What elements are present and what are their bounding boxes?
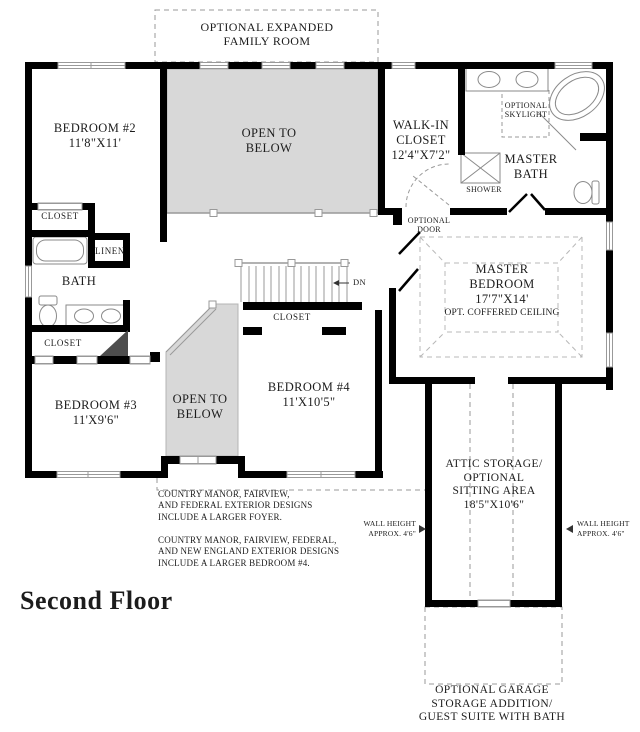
angled-wall-fill: [100, 330, 128, 356]
window: [58, 63, 125, 69]
label-wall-height-left: WALL HEIGHT APPROX. 4'6": [352, 519, 416, 539]
window: [607, 333, 613, 367]
toilet-icon: [39, 296, 57, 327]
label-bedroom4: BEDROOM #4 11'X10'5": [268, 380, 350, 410]
window: [607, 222, 613, 250]
wall-height-left-arrow-icon: [419, 525, 426, 533]
window: [57, 472, 120, 478]
window: [262, 63, 290, 69]
window: [200, 63, 228, 69]
label-closet-hall: CLOSET: [44, 338, 82, 349]
note-larger-bedroom4: COUNTRY MANOR, FAIRVIEW, FEDERAL, AND NE…: [158, 535, 339, 569]
label-master-bedroom: MASTER BEDROOM 17'7"X14': [469, 262, 534, 306]
doorway: [77, 356, 97, 364]
shower-icon: [461, 153, 500, 183]
window: [287, 472, 355, 478]
floor-plan-page: OPTIONAL EXPANDED FAMILY ROOM BEDROOM #2…: [0, 0, 640, 732]
doorway: [35, 356, 53, 364]
label-master-bath: MASTER BATH: [504, 152, 557, 182]
label-coffered-ceiling: OPT. COFFERED CEILING: [444, 308, 559, 319]
label-optional-skylight: OPTIONAL SKYLIGHT: [505, 101, 547, 120]
label-dn: DN: [353, 277, 366, 287]
double-sink-vanity-icon: [66, 305, 127, 327]
label-linen: LINEN: [95, 246, 125, 257]
page-title: Second Floor: [20, 586, 173, 616]
window: [392, 63, 415, 69]
label-optional-door: OPTIONAL DOOR: [408, 216, 450, 235]
master-toilet-icon: [574, 181, 599, 204]
doorway: [38, 203, 82, 210]
label-walk-in-closet: WALK-IN CLOSET 12'4"X7'2": [392, 118, 451, 162]
label-open-to-below-top: OPEN TO BELOW: [242, 126, 297, 156]
railing-opening: [180, 456, 216, 464]
label-bedroom2: BEDROOM #2 11'8"X11': [54, 121, 136, 151]
note-larger-foyer: COUNTRY MANOR, FAIRVIEW, AND FEDERAL EXT…: [158, 489, 313, 523]
label-bath: BATH: [62, 274, 96, 289]
label-optional-family-room: OPTIONAL EXPANDED FAMILY ROOM: [201, 20, 334, 48]
label-open-to-below-bottom: OPEN TO BELOW: [173, 392, 228, 422]
label-wall-height-right: WALL HEIGHT APPROX. 4'6": [577, 519, 630, 539]
label-garage-caption: OPTIONAL GARAGE STORAGE ADDITION/ GUEST …: [419, 684, 565, 725]
label-closet-bedroom2: CLOSET: [41, 211, 79, 222]
window: [555, 63, 592, 69]
label-closet-bedroom4: CLOSET: [273, 312, 311, 323]
wall-height-right-arrow-icon: [566, 525, 573, 533]
master-vanity-icon: [466, 68, 548, 91]
window: [26, 266, 32, 297]
doorway: [478, 600, 510, 607]
window: [316, 63, 344, 69]
label-shower: SHOWER: [466, 185, 502, 194]
doorway: [130, 356, 150, 364]
stairs: [235, 260, 350, 303]
label-bedroom3: BEDROOM #3 11'X9'6": [55, 398, 137, 428]
label-attic-storage: ATTIC STORAGE/ OPTIONAL SITTING AREA 18'…: [445, 458, 542, 512]
